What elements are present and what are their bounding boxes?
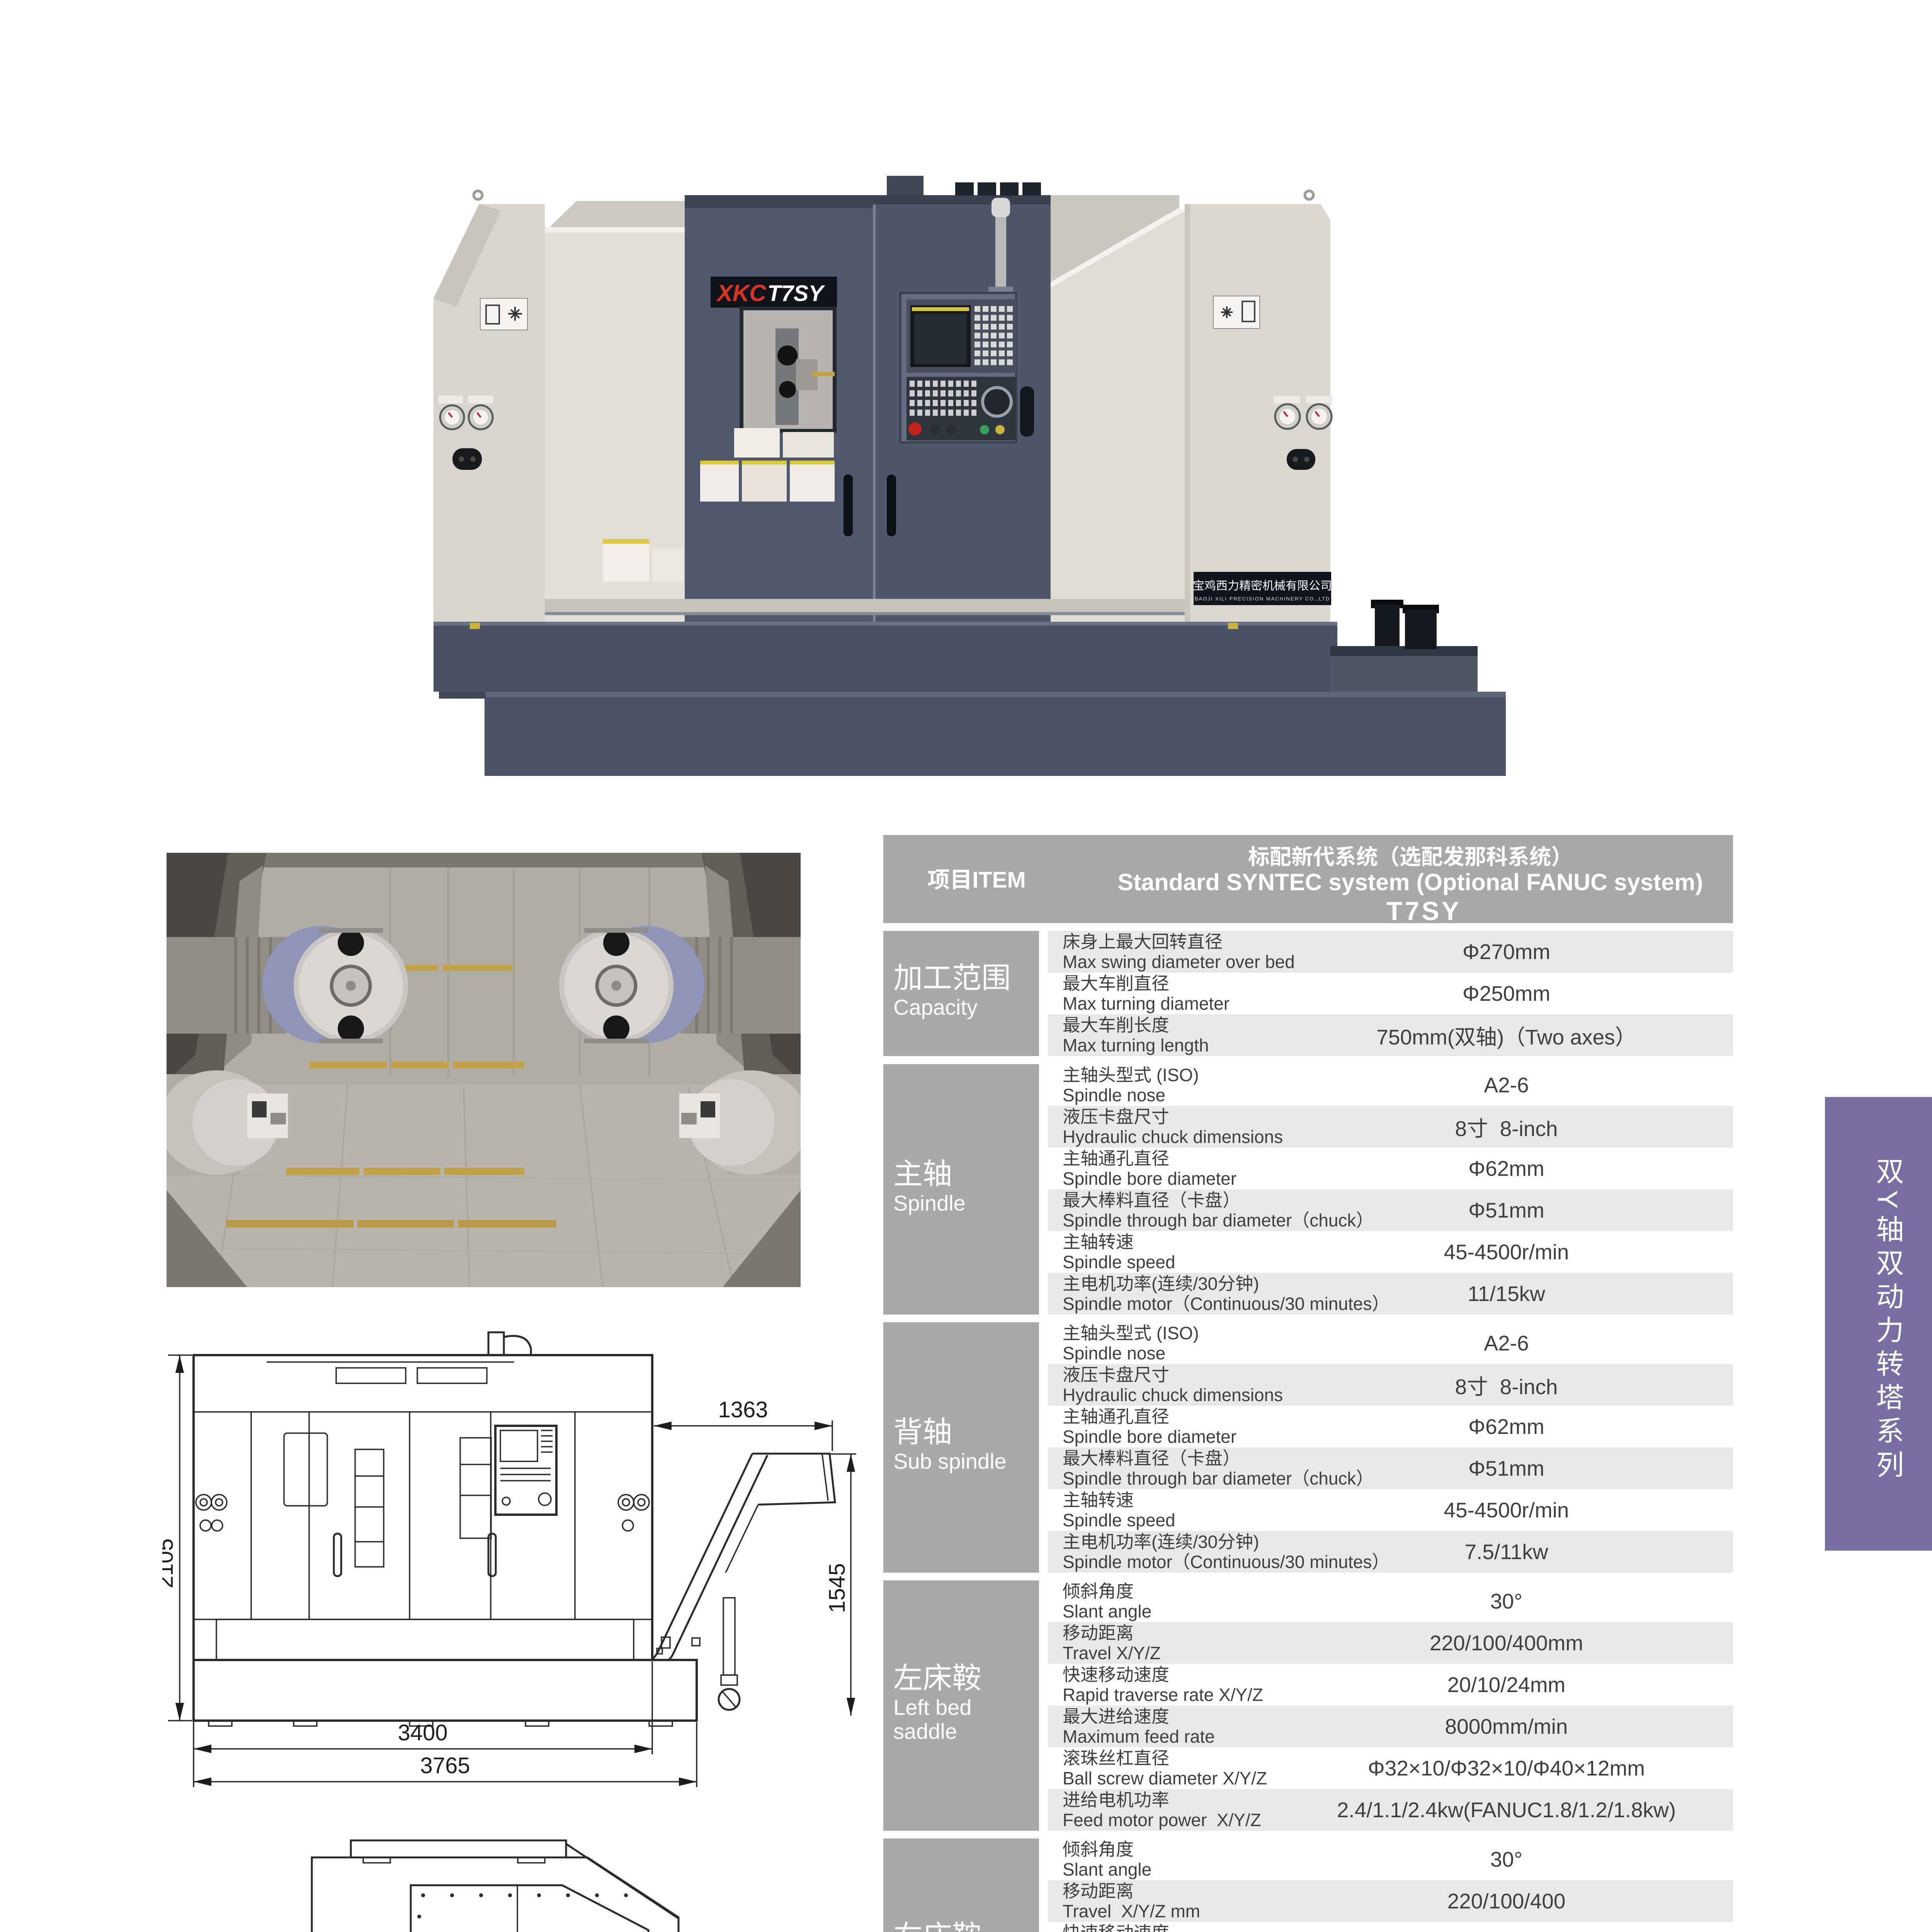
svg-text:T7SY: T7SY: [767, 281, 825, 306]
svg-text:3765: 3765: [420, 1753, 470, 1778]
svg-text:1545: 1545: [825, 1563, 850, 1613]
svg-text:宝鸡西力精密机械有限公司: 宝鸡西力精密机械有限公司: [1193, 580, 1332, 592]
svg-text:XKC: XKC: [716, 280, 767, 306]
svg-text:2105: 2105: [162, 1538, 178, 1588]
svg-text:BAOJI XILI PRECISION MACHINERY: BAOJI XILI PRECISION MACHINERY CO.,LTD: [1195, 596, 1330, 602]
svg-text:1363: 1363: [718, 1397, 768, 1422]
svg-text:3400: 3400: [398, 1720, 447, 1745]
